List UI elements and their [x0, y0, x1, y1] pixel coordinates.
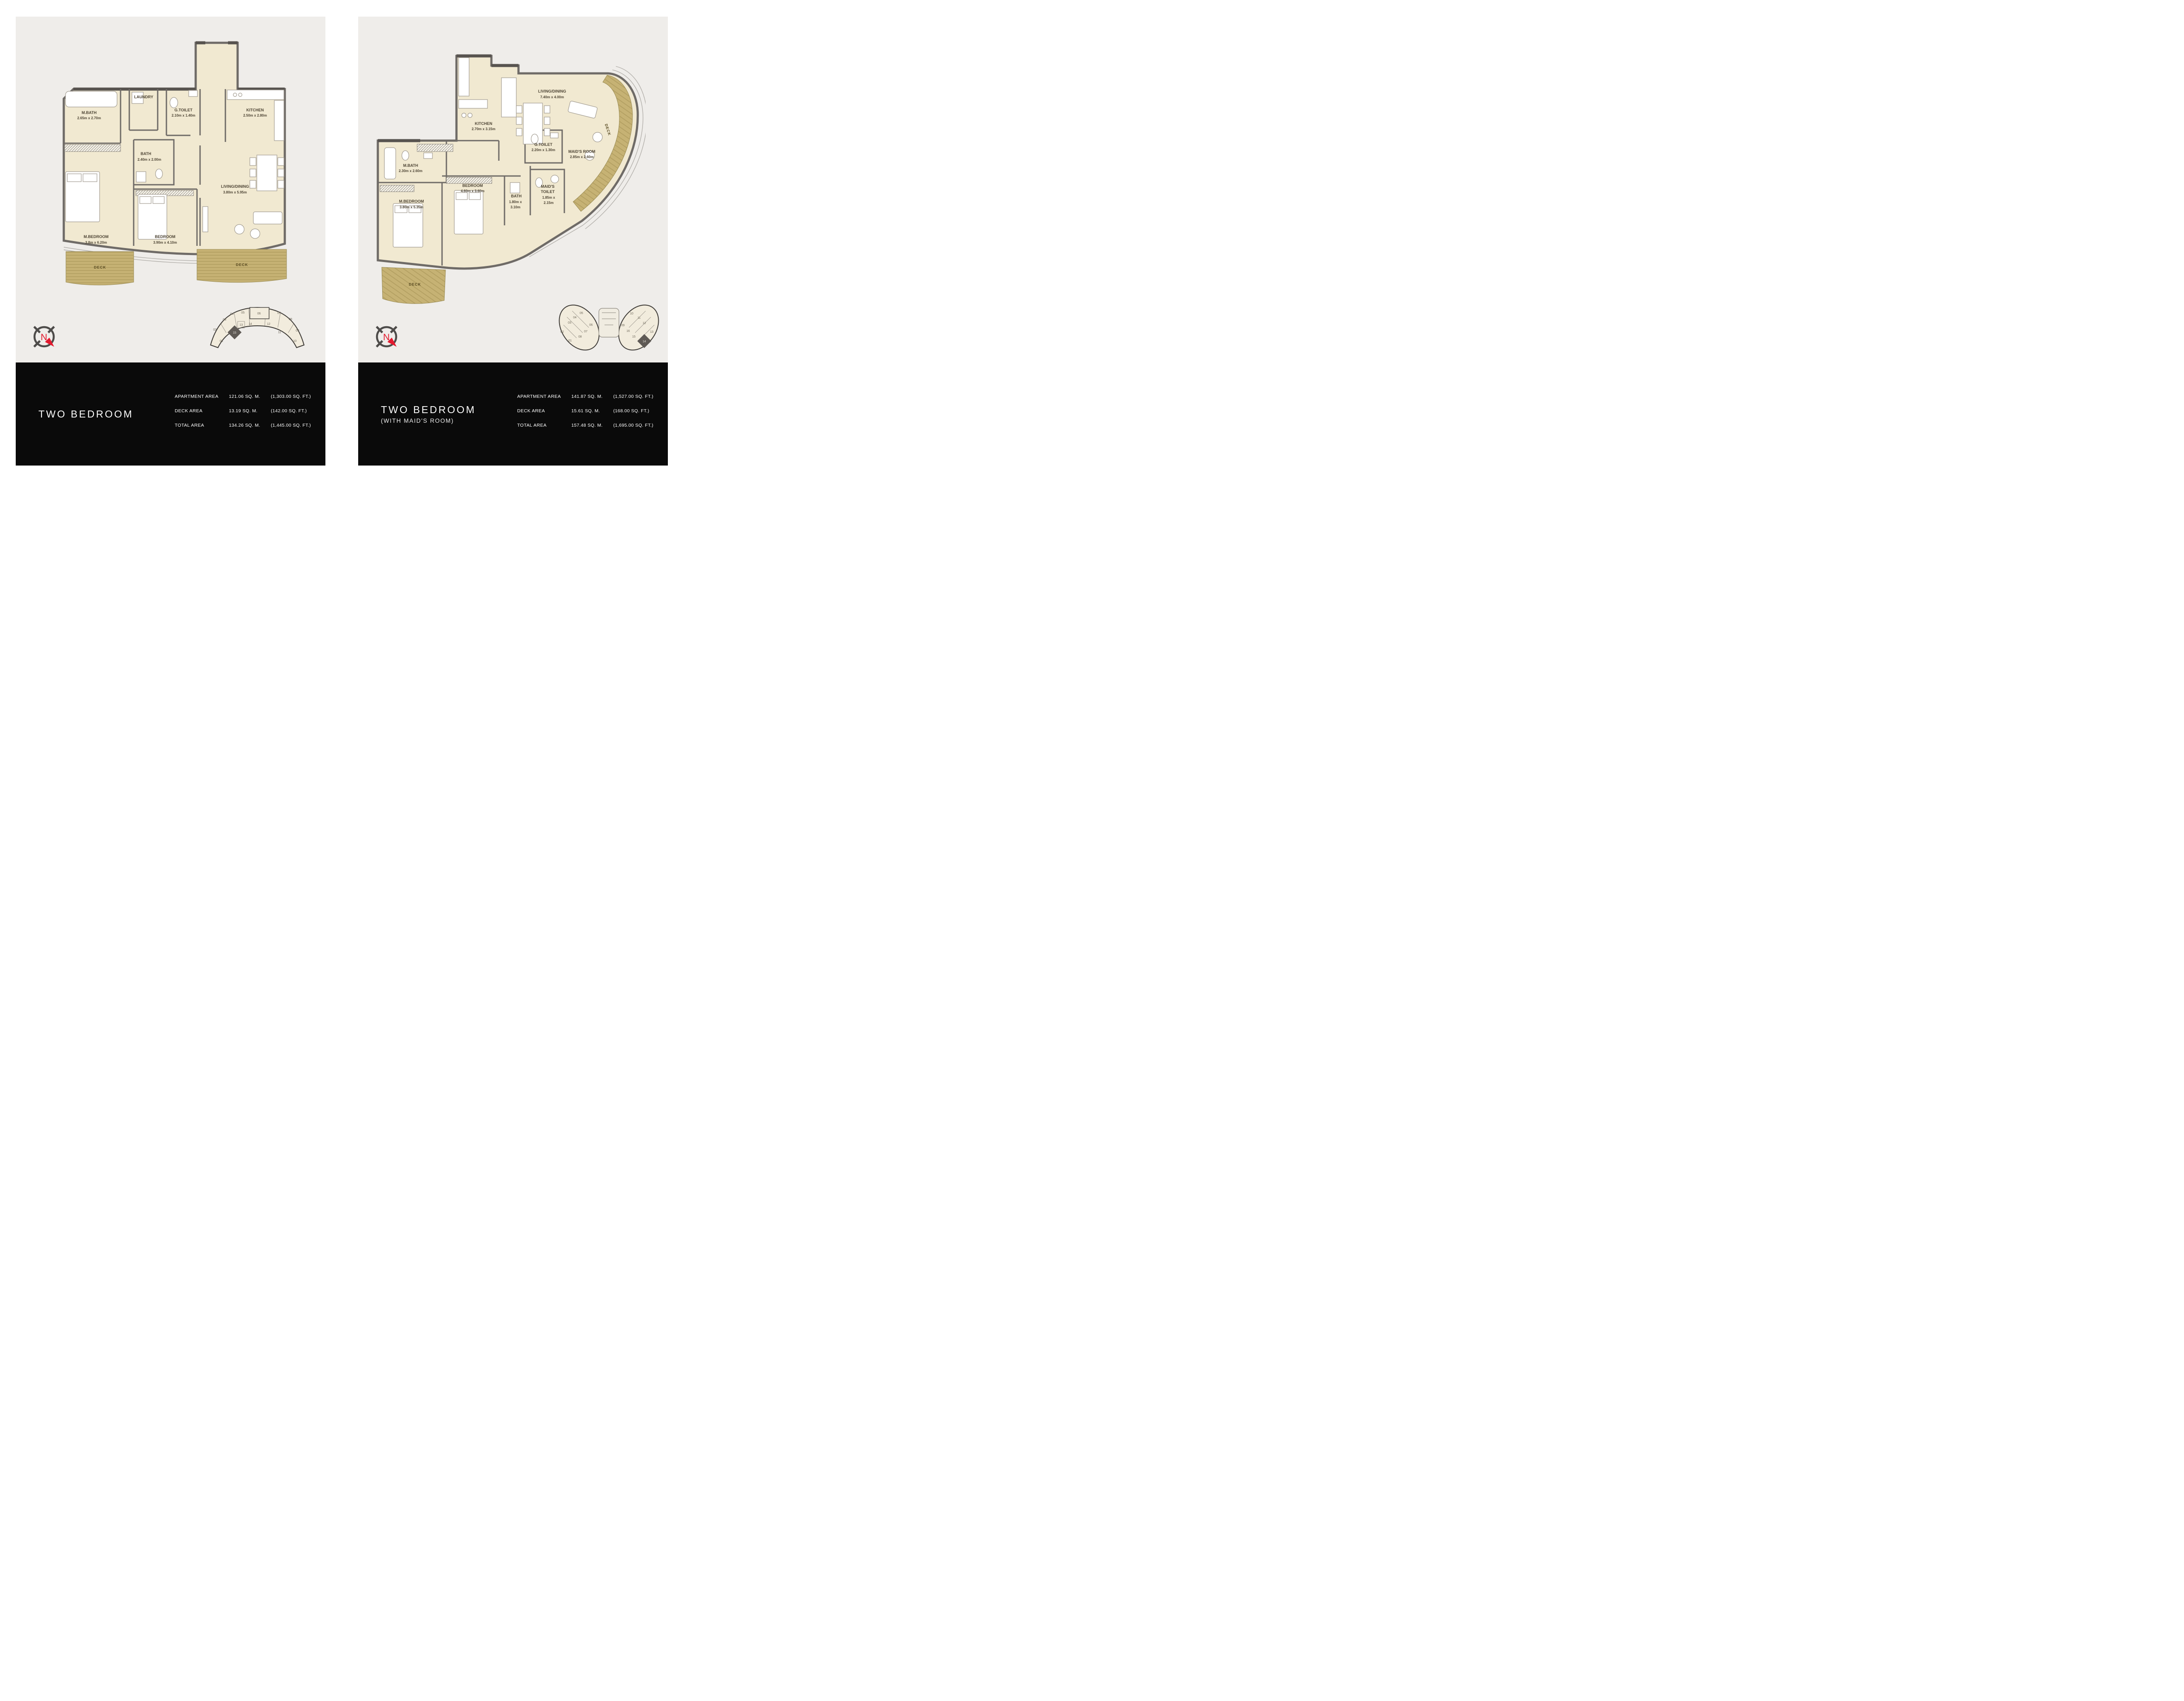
room-dims-mbath: 2.65m x 2.70m [77, 116, 101, 120]
area-row-imperial: (1,695.00 SQ. FT.) [613, 423, 666, 428]
keyplan-unit-11: 11 [637, 317, 640, 320]
compass-north-indicator: N [371, 321, 403, 353]
table-row: DECK AREA 13.19 SQ. M. (142.00 SQ. FT.) [175, 408, 323, 423]
room-dims-bath: 2.40m x 2.00m [138, 158, 161, 162]
table-row: TOTAL AREA 134.26 SQ. M. (1,445.00 SQ. F… [175, 423, 323, 437]
keyplan-unit-08: 08 [578, 335, 582, 338]
area-row-label: TOTAL AREA [517, 423, 571, 428]
area-row-label: DECK AREA [175, 408, 229, 414]
keyplan-unit-06: 06 [589, 324, 593, 327]
area-row-label: APARTMENT AREA [517, 394, 571, 399]
room-dims-gtoilet: 2.10m x 1.40m [172, 114, 195, 117]
keyplan-unit-07: 07 [584, 330, 587, 333]
room-label-living: LIVING/DINING [538, 89, 566, 93]
keyplan-unit-15: 15 [632, 335, 636, 338]
room-label-living: LIVING/DINING [221, 184, 249, 189]
room-label-mbedroom: M.BEDROOM [399, 199, 424, 204]
area-row-imperial: (1,527.00 SQ. FT.) [613, 394, 666, 399]
keyplan-unit-13: 13 [650, 331, 653, 334]
floorplan-brochure-page: M.BATH 2.65m x 2.70m LAUNDRY G.TOILET 2.… [0, 0, 684, 480]
room-label-kitchen: KITCHEN [475, 121, 492, 126]
table-row: APARTMENT AREA 141.87 SQ. M. (1,527.00 S… [517, 394, 666, 408]
keyplan-two-wings: 01 02 03 04 05 06 07 08 09 10 11 12 13 1… [556, 300, 662, 357]
keyplan-unit-06: 06 [257, 312, 261, 315]
right-area-table: APARTMENT AREA 141.87 SQ. M. (1,527.00 S… [517, 394, 666, 437]
room-dims-bedroom: 3.90m x 4.10m [153, 241, 177, 245]
deck-label-right: DECK [236, 262, 248, 267]
table-row: DECK AREA 15.61 SQ. M. (168.00 SQ. FT.) [517, 408, 666, 423]
room-dims-bath-2: 3.10m [511, 205, 521, 209]
area-row-metric: 13.19 SQ. M. [229, 408, 271, 414]
keyplan-unit-16: 16 [626, 330, 630, 333]
room-dims-bedroom: 4.60m x 3.60m [461, 189, 484, 193]
keyplan-unit-08: 08 [289, 318, 292, 321]
keyplan-unit-09: 09 [621, 324, 625, 327]
keyplan-unit-13: 13 [239, 324, 243, 327]
area-row-imperial: (168.00 SQ. FT.) [613, 408, 666, 414]
table-row: TOTAL AREA 157.48 SQ. M. (1,695.00 SQ. F… [517, 423, 666, 437]
compass-north-indicator: N [29, 321, 60, 353]
area-row-metric: 141.87 SQ. M. [571, 394, 613, 399]
keyplan-unit-04: 04 [573, 316, 577, 319]
keyplan-unit-01: 01 [220, 340, 223, 343]
room-label-maids-toilet-1: MAID'S [541, 184, 554, 189]
area-row-metric: 134.26 SQ. M. [229, 423, 271, 428]
room-label-maids-toilet-2: TOILET [541, 190, 555, 194]
right-sheet-info-panel: TWO BEDROOM (WITH MAID'S ROOM) APARTMENT… [358, 362, 668, 466]
area-row-metric: 121.06 SQ. M. [229, 394, 271, 399]
room-dims-kitchen: 2.50m x 2.80m [243, 114, 267, 117]
right-plan-title: TWO BEDROOM [381, 404, 476, 415]
keyplan-unit-03: 03 [223, 318, 226, 321]
room-dims-living: 7.40m x 4.00m [540, 95, 564, 99]
room-label-bath: BATH [511, 194, 522, 198]
keyplan-unit-07: 07 [277, 312, 281, 315]
two-bedroom-maid-floorplan: KITCHEN 2.70m x 3.15m LIVING/DINING 7.40… [377, 52, 646, 307]
room-label-bath: BATH [141, 152, 151, 156]
right-sheet-plan-panel: KITCHEN 2.70m x 3.15m LIVING/DINING 7.40… [358, 17, 668, 362]
keyplan-unit-05: 05 [241, 311, 245, 314]
room-label-mbath: M.BATH [403, 163, 418, 168]
room-label-mbedroom: M.BEDROOM [84, 235, 109, 239]
keyplan-unit-14-highlighted: 14 [643, 340, 646, 343]
room-label-kitchen: KITCHEN [246, 108, 264, 112]
area-row-metric: 157.48 SQ. M. [571, 423, 613, 428]
room-label-gtoilet: G.TOILET [174, 108, 193, 112]
room-label-laundry: LAUNDRY [134, 95, 153, 99]
left-plan-title: TWO BEDROOM [38, 408, 133, 420]
room-label-mbath: M.BATH [82, 110, 97, 115]
room-label-gtoilet: G.TOILET [534, 142, 553, 147]
keyplan-unit-02: 02 [560, 331, 564, 334]
room-dims-kitchen: 2.70m x 3.15m [472, 127, 495, 131]
keyplan-unit-11: 11 [278, 331, 281, 334]
room-dims-mbedroom: 3.8m x 6.20m [85, 241, 107, 245]
room-dims-living: 3.80m x 5.95m [223, 190, 247, 194]
table-row: APARTMENT AREA 121.06 SQ. M. (1,303.00 S… [175, 394, 323, 408]
area-row-label: APARTMENT AREA [175, 394, 229, 399]
deck-label-bottom: DECK [409, 282, 421, 286]
room-dims-bath-1: 1.80m x [509, 200, 522, 204]
room-dims-maids-toilet-1: 1.85m x [542, 196, 555, 200]
keyplan-unit-01: 01 [568, 339, 572, 342]
room-dims-mbath: 2.30m x 2.60m [399, 169, 422, 173]
keyplan-unit-10: 10 [630, 312, 633, 315]
keyplan-unit-05: 05 [580, 312, 583, 315]
deck-label-left: DECK [94, 265, 106, 269]
left-area-table: APARTMENT AREA 121.06 SQ. M. (1,303.00 S… [175, 394, 323, 437]
keyplan-unit-10: 10 [293, 340, 297, 343]
keyplan-unit-02: 02 [213, 328, 217, 331]
area-row-imperial: (142.00 SQ. FT.) [271, 408, 323, 414]
keyplan-unit-09: 09 [296, 329, 299, 332]
room-dims-mbedroom: 3.80m x 5.35m [400, 205, 423, 209]
area-row-label: TOTAL AREA [175, 423, 229, 428]
keyplan-unit-12: 12 [267, 323, 270, 326]
room-dims-maids-room: 2.85m x 2.60m [570, 155, 594, 159]
room-label-bedroom: BEDROOM [463, 183, 483, 188]
two-bedroom-floorplan: M.BATH 2.65m x 2.70m LAUNDRY G.TOILET 2.… [59, 41, 288, 288]
keyplan-unit-12: 12 [643, 322, 646, 325]
right-plan-subtitle: (WITH MAID'S ROOM) [381, 417, 476, 424]
keyplan-crescent: 01 02 03 04 05 06 07 08 09 10 11 12 13 1… [207, 301, 308, 357]
area-row-imperial: (1,445.00 SQ. FT.) [271, 423, 323, 428]
room-label-bedroom: BEDROOM [155, 235, 176, 239]
keyplan-unit-04: 04 [230, 313, 234, 316]
keyplan-unit-15-highlighted: 15 [233, 331, 236, 335]
room-dims-maids-toilet-2: 2.15m [544, 201, 554, 205]
keyplan-unit-14: 14 [249, 323, 252, 326]
area-row-imperial: (1,303.00 SQ. FT.) [271, 394, 323, 399]
room-label-maids-room: MAID'S ROOM [568, 149, 595, 154]
left-sheet-plan-panel: M.BATH 2.65m x 2.70m LAUNDRY G.TOILET 2.… [16, 17, 325, 362]
left-sheet-info-panel: TWO BEDROOM APARTMENT AREA 121.06 SQ. M.… [16, 362, 325, 466]
area-row-metric: 15.61 SQ. M. [571, 408, 613, 414]
room-dims-gtoilet: 2.20m x 1.30m [532, 148, 555, 152]
area-row-label: DECK AREA [517, 408, 571, 414]
keyplan-unit-03: 03 [568, 321, 571, 324]
